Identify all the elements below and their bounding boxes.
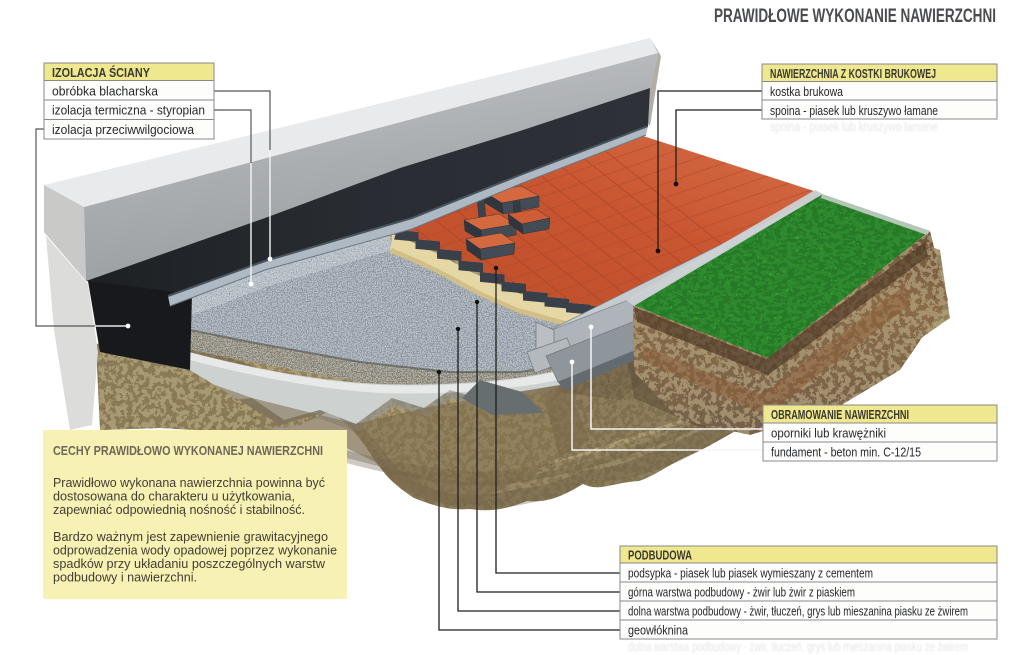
- svg-text:izolacja przeciwwilgociowa: izolacja przeciwwilgociowa: [52, 122, 195, 137]
- svg-text:NAWIERZCHNIA Z KOSTKI BRUKOWEJ: NAWIERZCHNIA Z KOSTKI BRUKOWEJ: [770, 67, 936, 81]
- svg-text:spoina - piasek lub kruszywo ł: spoina - piasek lub kruszywo łamane: [770, 103, 938, 118]
- svg-text:obróbka blacharska: obróbka blacharska: [52, 84, 159, 99]
- svg-text:dolna warstwa podbudowy - żwir: dolna warstwa podbudowy - żwir, tłuczeń,…: [628, 604, 968, 619]
- svg-text:geowłóknina: geowłóknina: [628, 623, 689, 638]
- svg-text:CECHY PRAWIDŁOWO WYKONANEJ NAW: CECHY PRAWIDŁOWO WYKONANEJ NAWIERZCHNI: [53, 443, 323, 458]
- svg-text:podbudowy i nawierzchni.: podbudowy i nawierzchni.: [53, 570, 197, 585]
- svg-text:IZOLACJA ŚCIANY: IZOLACJA ŚCIANY: [52, 65, 151, 80]
- svg-text:fundament - beton min. C-12/15: fundament - beton min. C-12/15: [771, 445, 921, 460]
- svg-text:spoina - piasek lub kruszywo ł: spoina - piasek lub kruszywo łamane: [770, 119, 938, 134]
- svg-text:OBRAMOWANIE NAWIERZCHNI: OBRAMOWANIE NAWIERZCHNI: [771, 408, 909, 422]
- svg-text:podsypka - piasek lub piasek w: podsypka - piasek lub piasek wymieszany …: [628, 566, 873, 581]
- svg-text:zapewniać odpowiednią nośność: zapewniać odpowiednią nośność i stabilno…: [53, 502, 305, 517]
- svg-text:kostka brukowa: kostka brukowa: [770, 84, 844, 99]
- svg-text:izolacja termiczna - styropian: izolacja termiczna - styropian: [52, 103, 205, 118]
- svg-text:oporniki lub krawężniki: oporniki lub krawężniki: [771, 426, 886, 441]
- svg-text:górna warstwa podbudowy - żwir: górna warstwa podbudowy - żwir lub żwir …: [628, 585, 855, 600]
- svg-text:PRAWIDŁOWE WYKONANIE NAWIERZCH: PRAWIDŁOWE WYKONANIE NAWIERZCHNI: [714, 6, 996, 27]
- svg-text:dolna warstwa podbudowy - żwir: dolna warstwa podbudowy - żwir, tłuczeń,…: [628, 639, 968, 654]
- svg-text:PODBUDOWA: PODBUDOWA: [628, 549, 692, 563]
